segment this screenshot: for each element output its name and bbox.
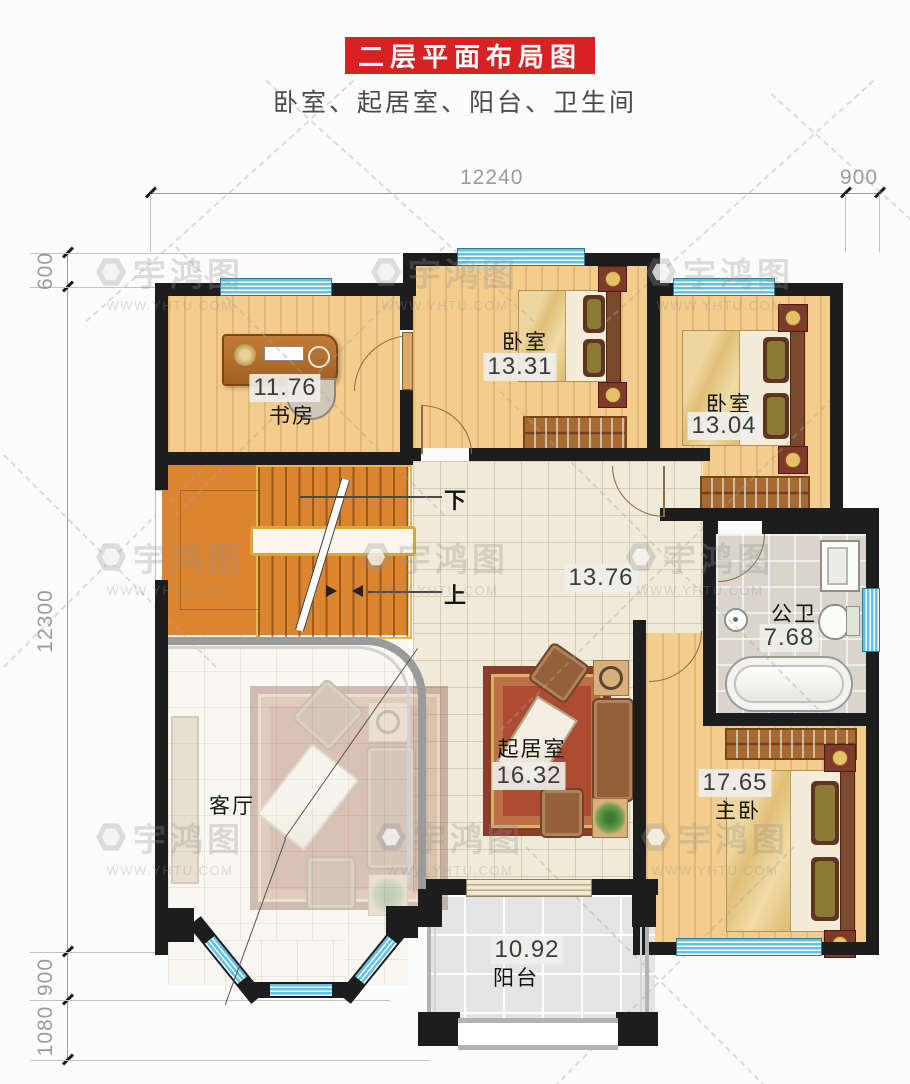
stairs-up-label: 上: [444, 578, 466, 610]
wall: [703, 713, 879, 726]
nightstand: [778, 304, 808, 332]
plant-icon: [595, 801, 625, 835]
nightstand: [778, 446, 808, 474]
sitting-plant: [592, 798, 628, 838]
nightstand: [598, 266, 627, 292]
balcony-sliding-door: [466, 879, 592, 897]
balcony-name-label: 阳台: [493, 962, 539, 992]
wall: [703, 521, 718, 534]
master-name-label: 主卧: [715, 795, 761, 825]
stair-landing-strip: [162, 490, 168, 580]
wall: [413, 448, 421, 461]
bed-pillow: [811, 857, 839, 921]
bed-pillow: [811, 781, 839, 845]
balcony-rail: [427, 927, 431, 1012]
study-door-leaf: [402, 332, 413, 390]
balcony-post: [632, 893, 656, 927]
bedroom1-wardrobe: [523, 416, 627, 450]
bathroom-bathtub: [725, 656, 853, 712]
study-area-label: 11.76: [249, 374, 320, 402]
balcony-rail-bottom: [458, 1018, 618, 1050]
bed-pillow: [583, 339, 605, 377]
bedroom2-wardrobe: [700, 476, 810, 510]
side-table-decor: [599, 666, 623, 690]
bed-pillow: [583, 295, 605, 333]
sitting-name-label: 起居室: [498, 733, 567, 763]
nightstand: [598, 382, 627, 408]
wall: [469, 448, 710, 461]
sitting-armchair: [540, 788, 584, 838]
balcony-post: [418, 1012, 460, 1046]
study-name-label: 书房: [269, 400, 315, 430]
sitting-side-table: [593, 660, 629, 696]
bedroom2-area-label: 13.04: [687, 412, 760, 440]
wall: [866, 508, 879, 955]
bathroom-window: [862, 588, 880, 652]
sitting-area-label: 16.32: [492, 762, 565, 790]
stairs-down-label: 下: [444, 483, 466, 515]
bedroom2-window: [673, 278, 775, 296]
master-window: [676, 938, 822, 956]
wall: [703, 534, 716, 713]
void-railing-inner: [168, 646, 410, 882]
wall: [830, 283, 843, 521]
desk-lamp: [234, 344, 256, 366]
bedroom1-area-label: 13.31: [483, 353, 556, 381]
hallway-area-label: 13.76: [564, 564, 637, 592]
bathroom-area-label: 7.68: [760, 624, 819, 652]
balcony-post: [418, 893, 442, 927]
bedroom2-headboard: [790, 328, 805, 448]
floor-plan-page: 二层平面布局图 卧室、起居室、阳台、卫生间 12240 900 600 1230…: [0, 0, 910, 1084]
balcony-rail: [645, 927, 649, 1012]
balcony-area-label: 10.92: [490, 936, 563, 964]
wall: [155, 452, 413, 465]
nightstand: [824, 744, 856, 772]
toilet-tank: [846, 606, 860, 636]
bedroom1-window: [457, 248, 585, 266]
living-name-label: 客厅: [209, 790, 255, 820]
bedroom1-headboard: [606, 288, 621, 384]
balcony-rail: [434, 927, 436, 1012]
master-area-label: 17.65: [698, 769, 771, 797]
bed-pillow: [763, 393, 789, 439]
bathroom-sink: [820, 540, 860, 592]
balcony-rail: [640, 927, 642, 1012]
study-window: [220, 278, 332, 296]
wall: [660, 508, 879, 521]
master-headboard: [840, 768, 855, 934]
wall: [647, 266, 660, 455]
bedroom1-name-label: 卧室: [502, 326, 548, 356]
bed-pillow: [763, 337, 789, 383]
wall: [400, 283, 413, 330]
wall: [762, 521, 866, 534]
sitting-sofa: [592, 698, 634, 802]
wall: [155, 580, 168, 955]
balcony-post: [616, 1012, 658, 1046]
bay-window-center: [246, 982, 356, 998]
